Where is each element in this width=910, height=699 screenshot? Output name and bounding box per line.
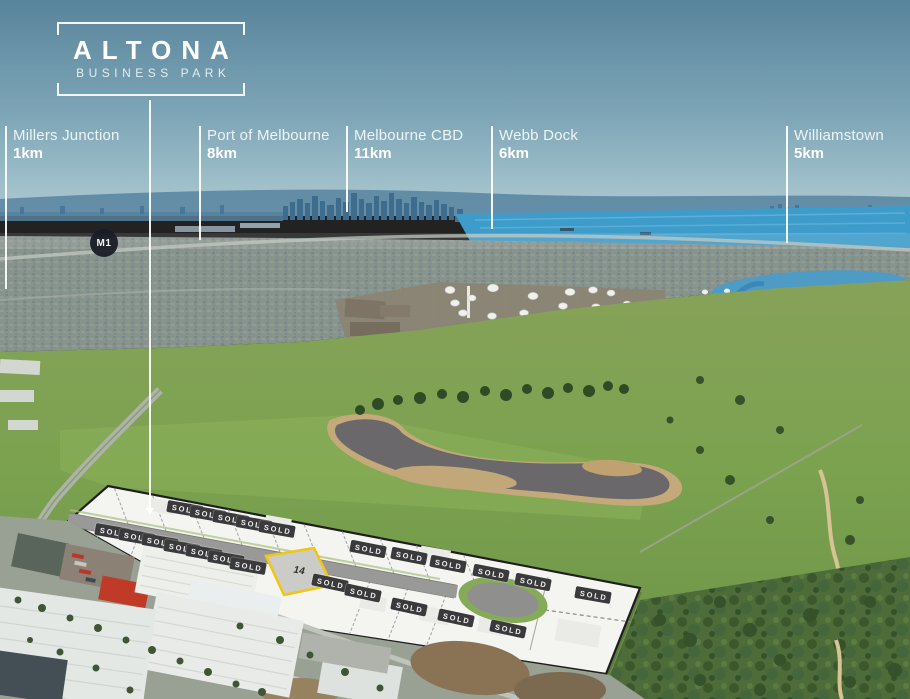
landmark-leader-line xyxy=(346,126,348,212)
landmark-distance: 11km xyxy=(354,145,463,163)
landmark-leader-line xyxy=(199,126,201,240)
landmark-distance: 6km xyxy=(499,145,578,163)
landmark-leader-line xyxy=(5,126,7,289)
ship xyxy=(560,228,574,231)
port-docks xyxy=(175,223,280,232)
logo-pointer-line xyxy=(149,100,151,508)
landmark-name: Millers Junction xyxy=(13,127,120,145)
landmark-leader-line xyxy=(491,126,493,229)
logo-subtitle: BUSINESS PARK xyxy=(57,65,245,81)
logo-pointer-arrow xyxy=(146,508,154,515)
landmark-distance: 5km xyxy=(794,145,884,163)
landmark-label: Webb Dock6km xyxy=(499,127,578,163)
altona-business-park-logo: ALTONA BUSINESS PARK xyxy=(57,22,245,96)
landmark-name: Williamstown xyxy=(794,127,884,145)
landmark-distance: 8km xyxy=(207,145,330,163)
logo-title: ALTONA xyxy=(57,35,245,65)
landmark-name: Melbourne CBD xyxy=(354,127,463,145)
landmark-label: Millers Junction1km xyxy=(13,127,120,163)
landmark-label: Melbourne CBD11km xyxy=(354,127,463,163)
aerial-marketing-image: ALTONA BUSINESS PARK M1 14 Millers Junct… xyxy=(0,0,910,699)
landmark-leader-line xyxy=(786,126,788,243)
landmark-name: Webb Dock xyxy=(499,127,578,145)
landmark-label: Williamstown5km xyxy=(794,127,884,163)
aerial-photo xyxy=(0,0,910,699)
landmark-name: Port of Melbourne xyxy=(207,127,330,145)
m1-route-badge: M1 xyxy=(90,229,118,257)
landmark-label: Port of Melbourne8km xyxy=(207,127,330,163)
landmark-distance: 1km xyxy=(13,145,120,163)
